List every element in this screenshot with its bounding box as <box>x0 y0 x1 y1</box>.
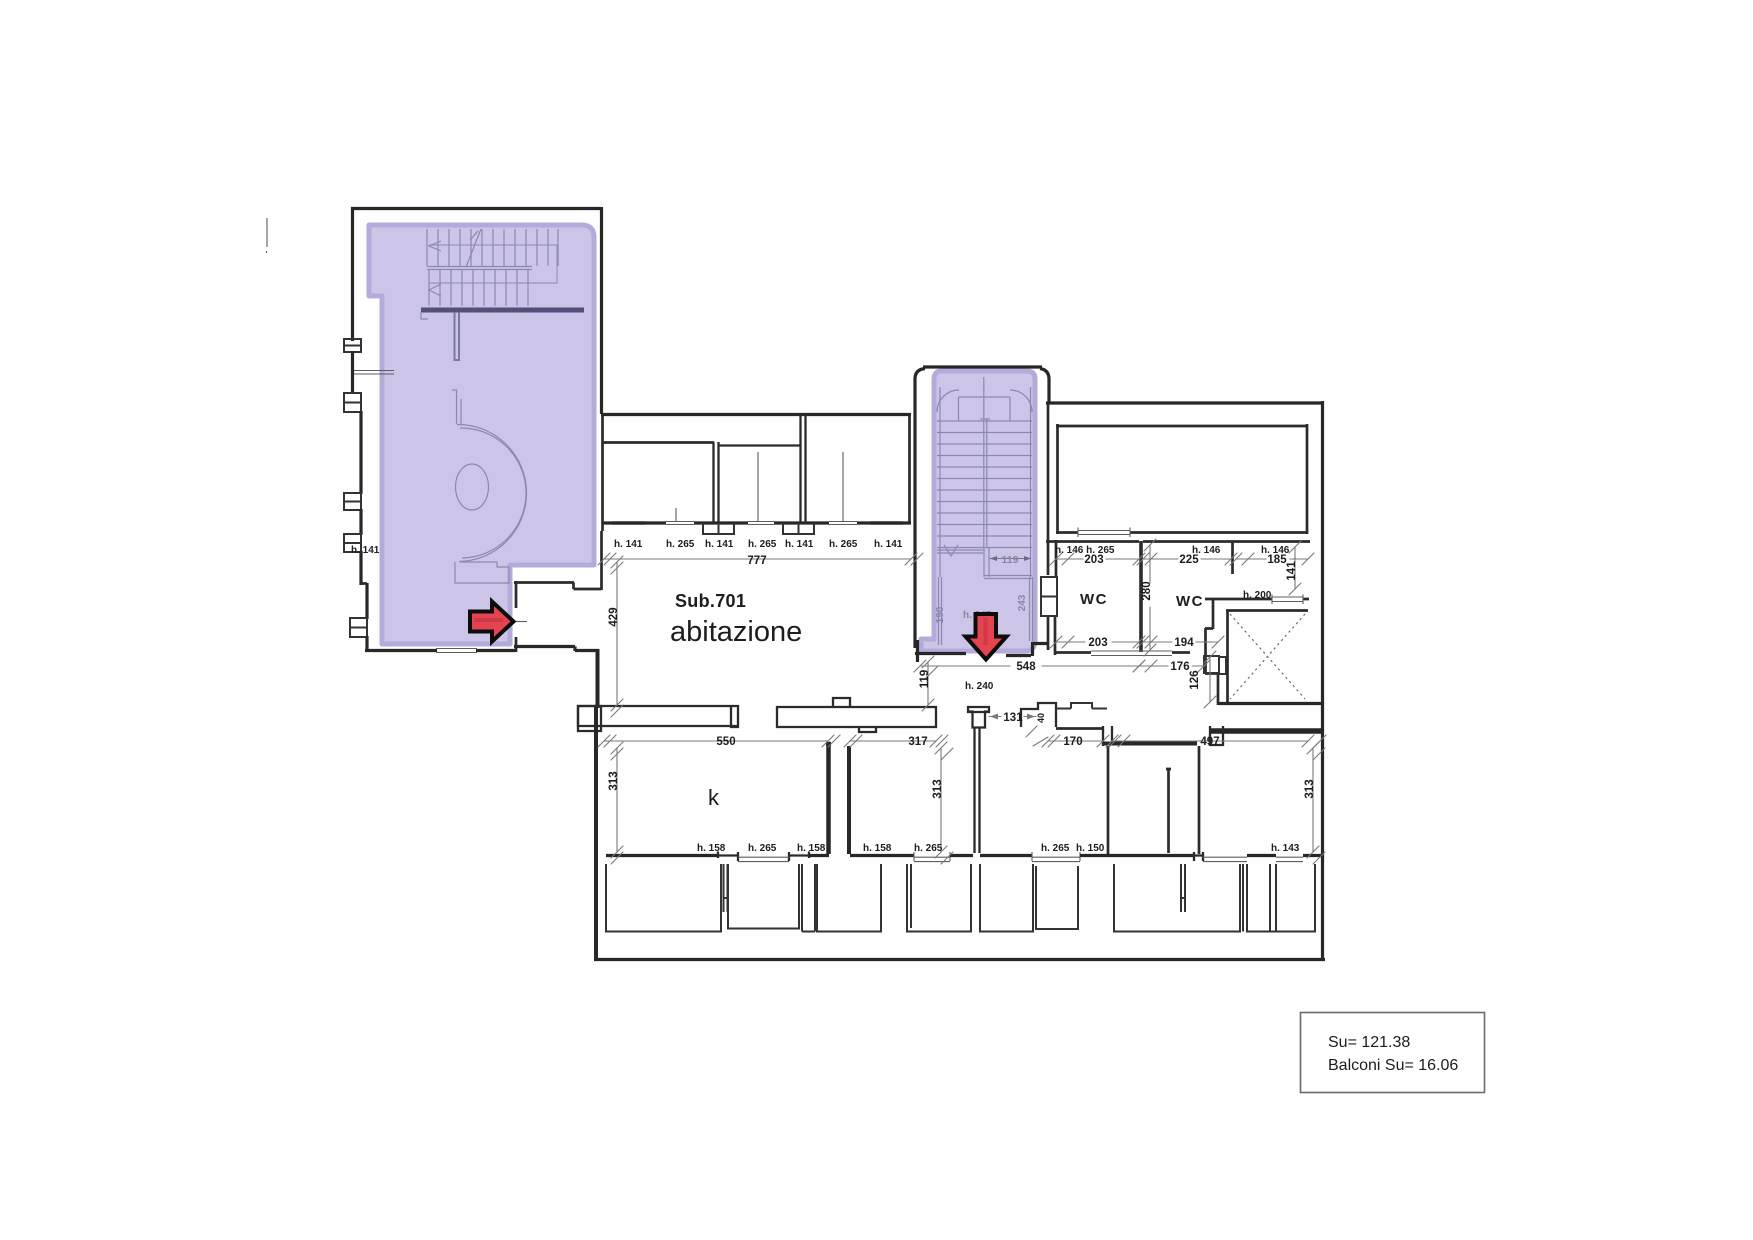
svg-text:119: 119 <box>919 670 931 689</box>
svg-text:h. 150: h. 150 <box>1076 843 1105 854</box>
svg-text:280: 280 <box>1141 581 1153 600</box>
svg-text:Balconi Su= 16.06: Balconi Su= 16.06 <box>1328 1057 1458 1074</box>
svg-text:131: 131 <box>1003 712 1023 724</box>
svg-text:190: 190 <box>935 606 946 623</box>
svg-text:h. 240: h. 240 <box>965 681 994 692</box>
svg-text:126: 126 <box>1189 670 1201 689</box>
svg-text:abitazione: abitazione <box>670 616 802 648</box>
svg-text:h. 265: h. 265 <box>748 843 777 854</box>
svg-text:203: 203 <box>1088 637 1107 649</box>
svg-text:170: 170 <box>1063 736 1082 748</box>
svg-text:h. 141: h. 141 <box>705 539 734 550</box>
svg-text:h. 265: h. 265 <box>748 539 777 550</box>
svg-text:429: 429 <box>608 607 620 626</box>
svg-text:h. 158: h. 158 <box>797 843 826 854</box>
svg-text:h. 265: h. 265 <box>666 539 695 550</box>
svg-text:h. 146: h. 146 <box>1192 545 1221 556</box>
svg-text:313: 313 <box>1304 779 1316 798</box>
svg-text:h. 146 h. 265: h. 146 h. 265 <box>1055 545 1115 556</box>
svg-text:h. 141: h. 141 <box>785 539 814 550</box>
svg-text:141: 141 <box>1286 561 1298 581</box>
svg-text:h. 200: h. 200 <box>1243 590 1272 601</box>
svg-text:550: 550 <box>716 736 735 748</box>
svg-text:119: 119 <box>1002 554 1019 566</box>
svg-text:h. 141: h. 141 <box>874 539 903 550</box>
svg-text:h. 265: h. 265 <box>1041 843 1070 854</box>
svg-text:Sub.701: Sub.701 <box>675 591 746 611</box>
svg-text:40: 40 <box>1036 713 1046 723</box>
svg-text:176: 176 <box>1170 661 1189 673</box>
svg-text:497: 497 <box>1200 736 1219 748</box>
svg-text:h. 265: h. 265 <box>829 539 858 550</box>
svg-text:h. 141: h. 141 <box>614 539 643 550</box>
svg-text:h. 265: h. 265 <box>914 843 943 854</box>
svg-text:777: 777 <box>747 555 766 567</box>
svg-text:k: k <box>708 785 720 810</box>
svg-text:h. 143: h. 143 <box>1271 843 1300 854</box>
svg-text:313: 313 <box>608 771 620 790</box>
svg-text:h. 158: h. 158 <box>863 843 892 854</box>
svg-text:h. 158: h. 158 <box>697 843 726 854</box>
svg-text:h. 146: h. 146 <box>1261 545 1290 556</box>
svg-text:243: 243 <box>1017 594 1028 611</box>
svg-text:WC: WC <box>1080 591 1108 608</box>
svg-text:h. 141: h. 141 <box>351 545 380 556</box>
svg-text:WC: WC <box>1176 593 1204 610</box>
svg-text:313: 313 <box>932 779 944 798</box>
svg-text:194: 194 <box>1174 637 1194 649</box>
svg-text:317: 317 <box>908 736 927 748</box>
svg-text:Su= 121.38: Su= 121.38 <box>1328 1034 1410 1051</box>
svg-text:548: 548 <box>1016 661 1036 673</box>
